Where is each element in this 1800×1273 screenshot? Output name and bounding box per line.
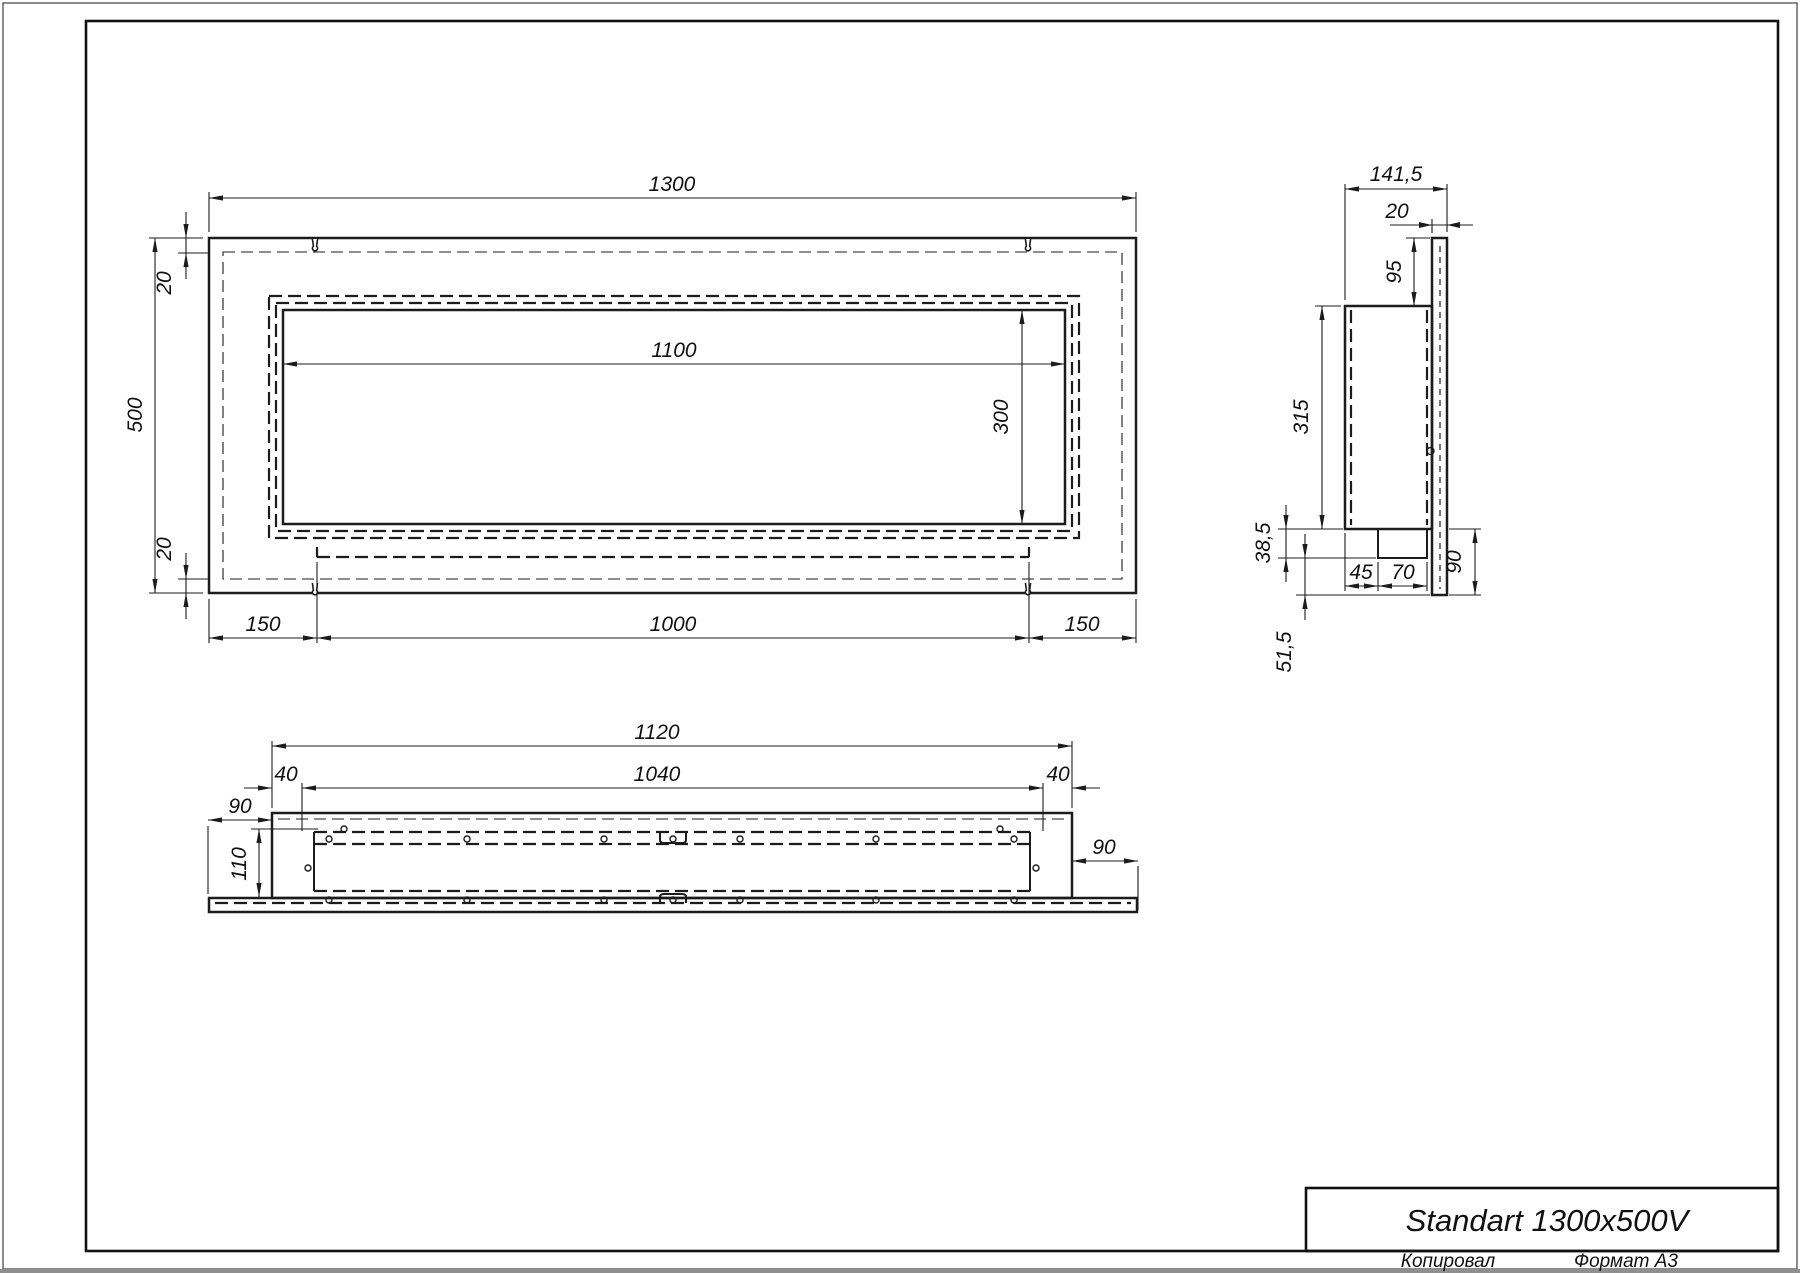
footer-copied-label: Копировал: [1401, 1251, 1496, 1272]
dim-side-burner-depth: 70: [1391, 561, 1415, 584]
dim-side-burner-setback: 45: [1349, 561, 1373, 584]
dim-side-body-height: 315: [1290, 399, 1313, 434]
front-view-hidden-lines: [223, 252, 1122, 579]
paper-border: [3, 3, 1797, 1269]
drawing-frame: [86, 21, 1778, 1251]
bottom-view-hidden-lines: [215, 819, 1131, 903]
paper-bottom-edge: [0, 1269, 1800, 1273]
side-view: 141,5 20 95 315 38,5: [1252, 163, 1481, 672]
keyhole-slot-icon: [1025, 583, 1030, 595]
title-block: Standart 1300x500V Копировал Формат А3: [1306, 1188, 1778, 1272]
dim-bottom-flange-overhang-right: 90: [1092, 836, 1116, 859]
dim-bottom-inner-length: 1040: [634, 763, 681, 786]
dim-bottom-margin-right: 40: [1046, 763, 1070, 786]
drawing-canvas: 1300 500 20 20 1100 300: [0, 0, 1800, 1273]
dim-bottom-body-inner-depth: 110: [228, 847, 251, 881]
dim-side-flange-below: 51,5: [1273, 631, 1296, 672]
dim-front-flange-offset-bottom: 20: [153, 537, 176, 562]
dim-bottom-body-length: 1120: [634, 721, 679, 744]
dim-side-top-to-body: 95: [1383, 260, 1406, 284]
drawing-sheet: 1300 500 20 20 1100 300: [0, 0, 1800, 1273]
bottom-view: 1120 1040 40 40 90 110 90: [208, 721, 1138, 912]
dim-front-opening-width: 1100: [651, 339, 696, 362]
drawing-title: Standart 1300x500V: [1406, 1203, 1692, 1238]
keyhole-slot-icon: [312, 239, 317, 251]
dim-side-overall-depth: 141,5: [1370, 163, 1423, 186]
dim-side-flange-thickness: 20: [1384, 200, 1409, 223]
dim-bottom-margin-left: 40: [274, 763, 298, 786]
dim-front-flange-offset-top: 20: [153, 271, 176, 296]
dim-side-burner-drop: 38,5: [1252, 522, 1275, 563]
bottom-view-dimensions: 1120 1040 40 40 90 110 90: [208, 721, 1138, 910]
dim-front-opening-height: 300: [990, 399, 1013, 434]
dim-front-mount-span: 1000: [650, 613, 697, 636]
dim-front-mount-right: 150: [1064, 613, 1099, 636]
front-view: 1300 500 20 20 1100 300: [124, 173, 1136, 643]
keyhole-slot-icon: [1025, 239, 1030, 251]
dim-front-overall-width: 1300: [649, 173, 696, 196]
dim-side-bottom-zone: 90: [1443, 550, 1466, 574]
side-view-outline: [1345, 238, 1447, 595]
dim-front-mount-left: 150: [245, 613, 280, 636]
footer-format-label: Формат А3: [1574, 1251, 1678, 1272]
dim-bottom-flange-overhang-left: 90: [228, 795, 252, 818]
front-view-keyhole-slots: [312, 239, 1030, 595]
dim-front-overall-height: 500: [124, 397, 147, 432]
